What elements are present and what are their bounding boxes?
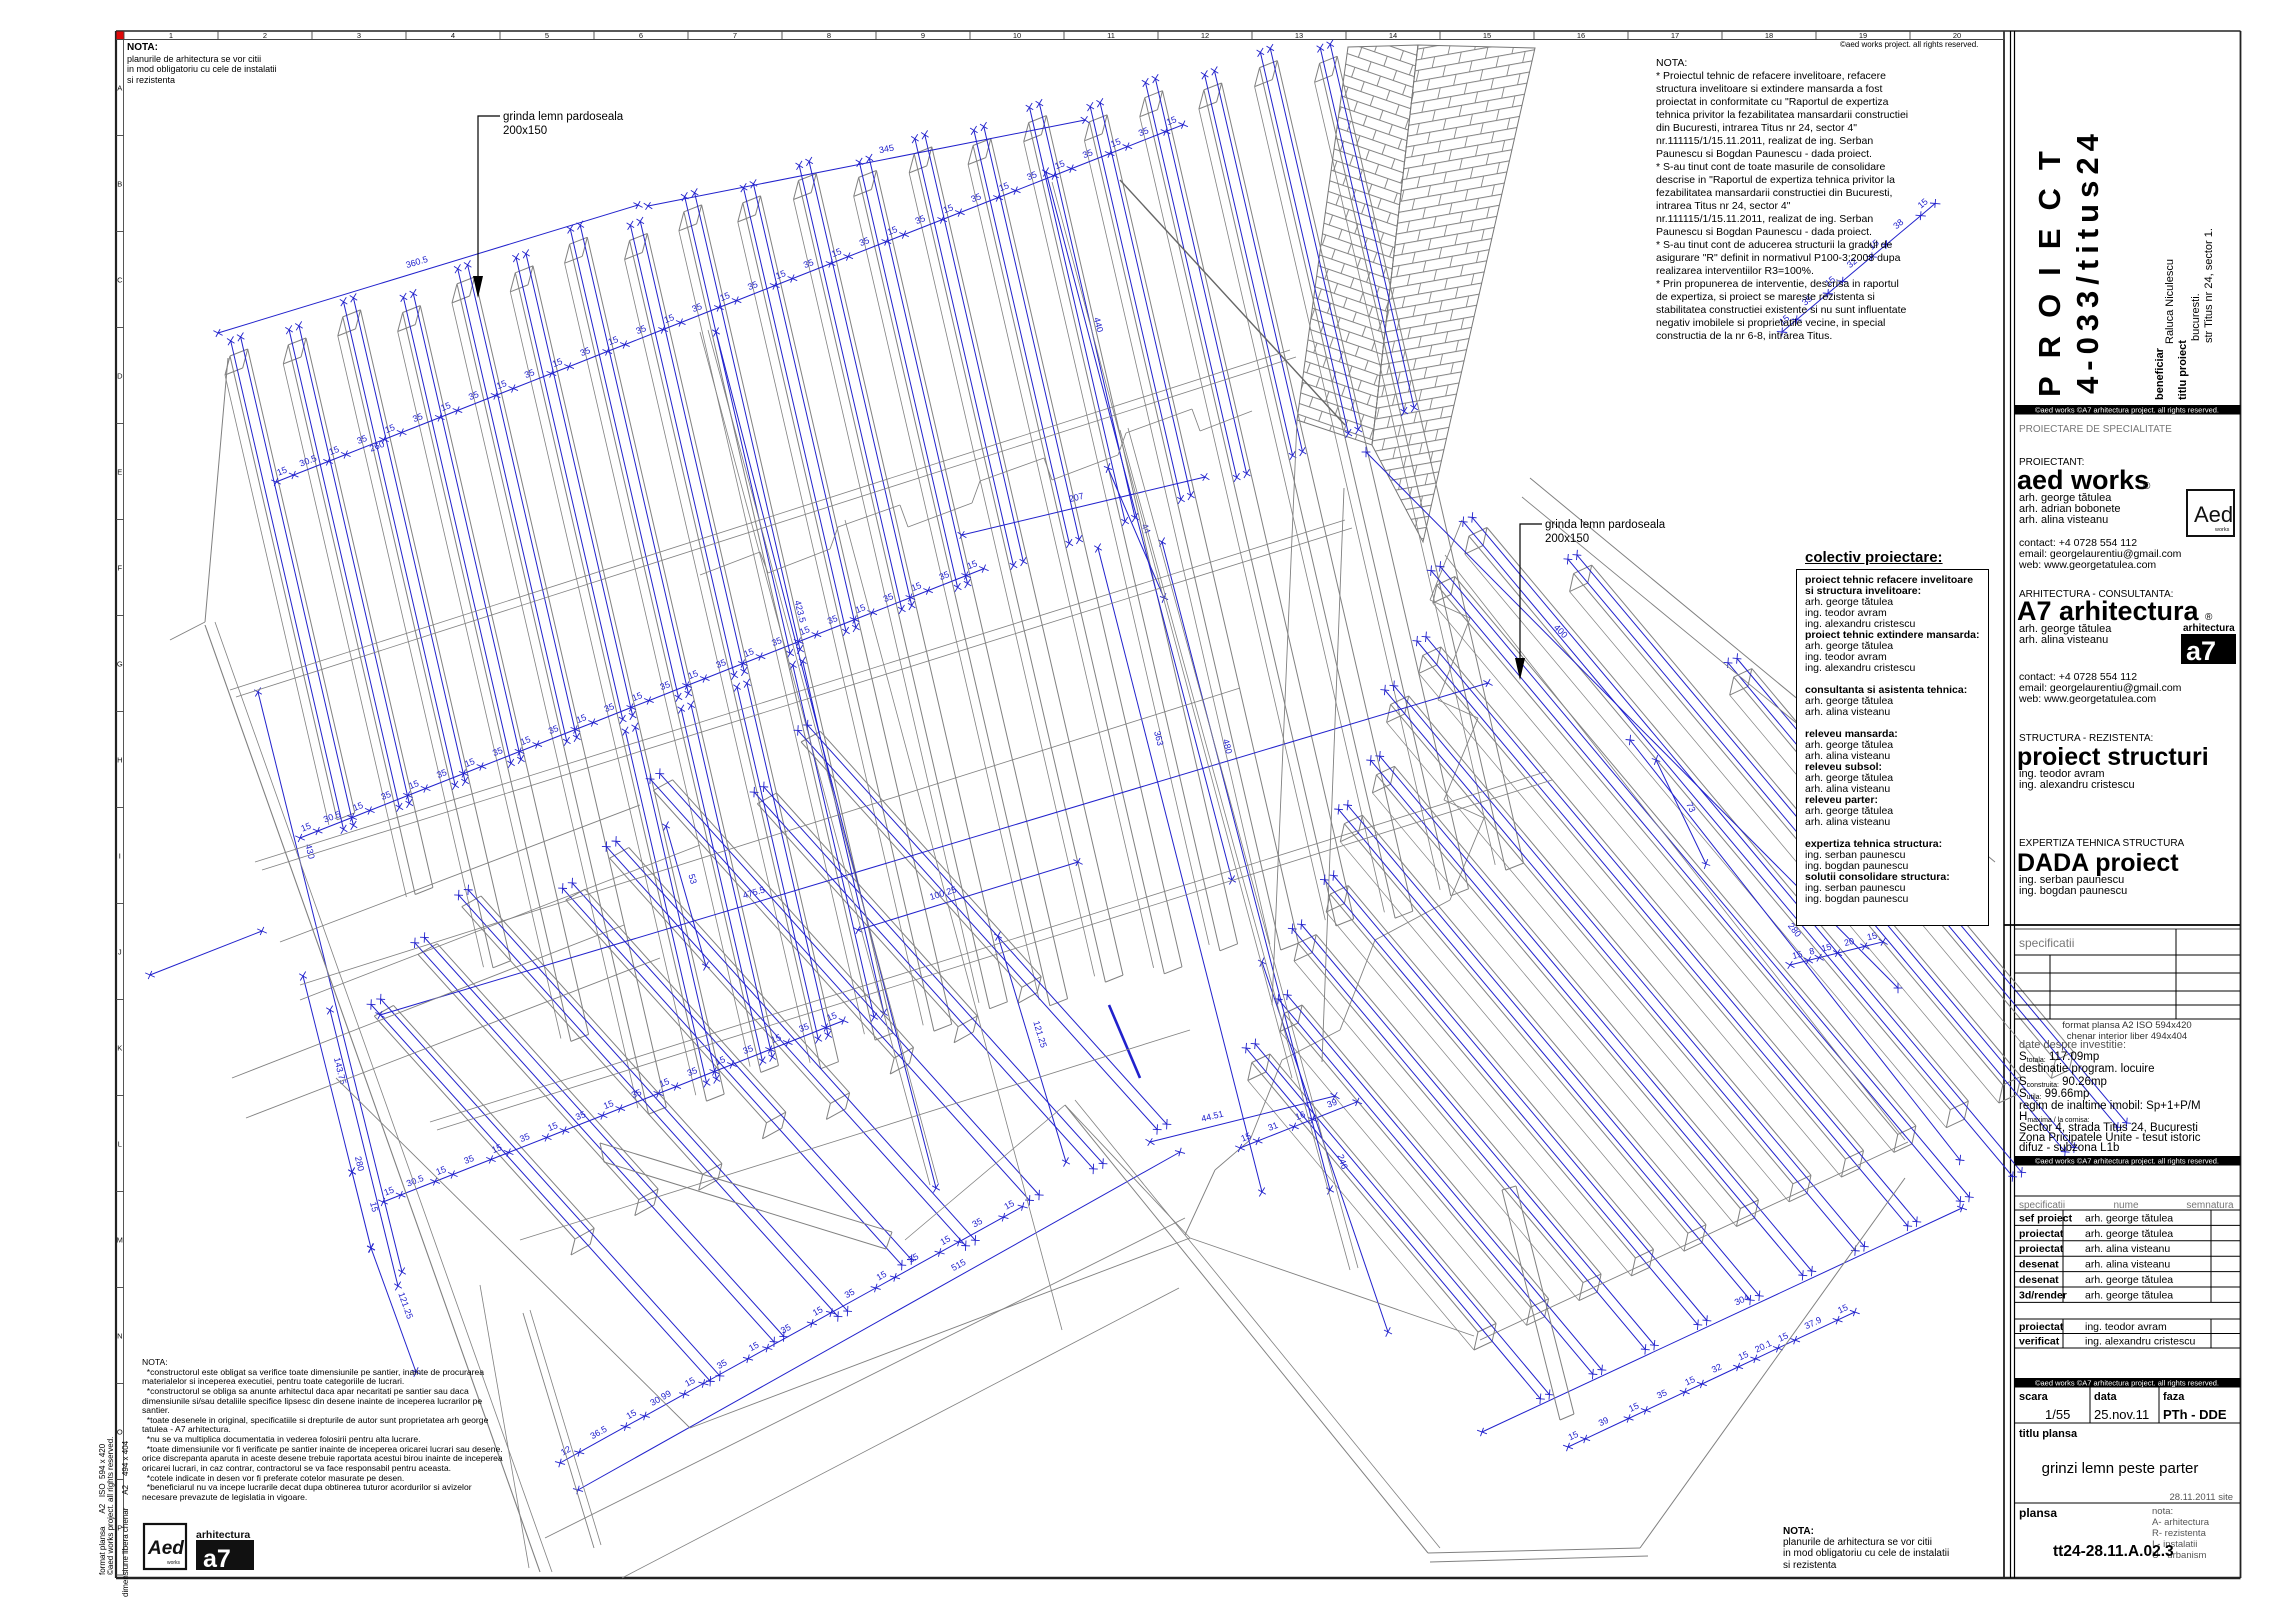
svg-text:a7: a7	[2186, 636, 2216, 666]
svg-text:data: data	[2094, 1391, 2118, 1403]
svg-text:PTh - DDE: PTh - DDE	[2163, 1407, 2227, 1422]
svg-text:Aed: Aed	[2194, 502, 2233, 527]
svg-text:©aed works ©A7 arhitectura pro: ©aed works ©A7 arhitectura project. all …	[2035, 406, 2219, 415]
svg-text:arh. alina visteanu: arh. alina visteanu	[2019, 634, 2108, 646]
svg-text:®: ®	[2205, 612, 2213, 623]
svg-text:©aed works ©A7 arhitectura pro: ©aed works ©A7 arhitectura project. all …	[2035, 1379, 2219, 1388]
svg-text:sef proiect: sef proiect	[2019, 1212, 2073, 1224]
svg-text:28.11.2011 site: 28.11.2011 site	[2169, 1492, 2233, 1503]
svg-text:aed works: aed works	[2017, 465, 2149, 495]
svg-text:arh. george tătulea: arh. george tătulea	[2085, 1274, 2173, 1286]
svg-text:beneficiar: beneficiar	[2154, 347, 2166, 400]
svg-text:titlu proiect: titlu proiect	[2177, 340, 2189, 400]
svg-text:faza: faza	[2163, 1391, 2185, 1403]
svg-text:date despre investitie:: date despre investitie:	[2019, 1039, 2126, 1051]
svg-text:scara: scara	[2019, 1391, 2049, 1403]
svg-text:arh. george tătulea: arh. george tătulea	[2085, 1228, 2173, 1240]
svg-text:proiectat: proiectat	[2019, 1228, 2064, 1240]
svg-text:ing. alexandru cristescu: ing. alexandru cristescu	[2019, 779, 2135, 791]
svg-text:specificatii: specificatii	[2019, 936, 2074, 950]
svg-text:ing. bogdan paunescu: ing. bogdan paunescu	[2019, 885, 2127, 897]
svg-text:plansa: plansa	[2019, 1506, 2057, 1520]
svg-text:4-033/titus24: 4-033/titus24	[2070, 128, 2105, 394]
svg-text:nume: nume	[2113, 1200, 2138, 1211]
svg-text:semnatura: semnatura	[2186, 1200, 2234, 1211]
svg-text:R- rezistenta: R- rezistenta	[2152, 1528, 2207, 1539]
svg-text:desenat: desenat	[2019, 1259, 2059, 1271]
svg-text:proiect structuri: proiect structuri	[2017, 743, 2209, 771]
svg-text:difuz - subzona L1b: difuz - subzona L1b	[2019, 1142, 2119, 1154]
svg-text:web: www.georgetatulea.com: web: www.georgetatulea.com	[2018, 693, 2156, 705]
svg-text:ing. teodor avram: ing. teodor avram	[2085, 1321, 2167, 1333]
svg-text:web: www.georgetatulea.com: web: www.georgetatulea.com	[2018, 559, 2156, 571]
svg-text:desenat: desenat	[2019, 1274, 2059, 1286]
svg-text:verificat: verificat	[2019, 1336, 2060, 1348]
svg-text:destinatie program. locuire: destinatie program. locuire	[2019, 1063, 2155, 1075]
svg-text:Raluca Niculescu: Raluca Niculescu	[2164, 259, 2176, 344]
svg-text:arh. alina visteanu: arh. alina visteanu	[2019, 514, 2108, 526]
svg-text:A7 arhitectura: A7 arhitectura	[2017, 596, 2200, 626]
svg-text:proiectat: proiectat	[2019, 1321, 2064, 1333]
svg-text:A- arhitectura: A- arhitectura	[2152, 1517, 2210, 1528]
svg-text:PROIECTARE DE SPECIALITATE: PROIECTARE DE SPECIALITATE	[2019, 424, 2172, 435]
svg-text:titlu plansa: titlu plansa	[2019, 1428, 2078, 1440]
svg-text:1/55: 1/55	[2045, 1407, 2070, 1422]
svg-text:str Titus nr 24, sector 1.: str Titus nr 24, sector 1.	[2203, 228, 2215, 343]
svg-text:specificatii: specificatii	[2019, 1200, 2065, 1211]
svg-text:regim de inaltime imobil: Sp+1: regim de inaltime imobil: Sp+1+P/M	[2019, 1100, 2201, 1112]
svg-text:tt24-28.11.A.02.3: tt24-28.11.A.02.3	[2053, 1543, 2174, 1560]
svg-text:arh. alina visteanu: arh. alina visteanu	[2085, 1243, 2170, 1255]
svg-text:bucuresti.: bucuresti.	[2190, 293, 2202, 341]
svg-text:PROIECT: PROIECT	[2032, 133, 2067, 397]
svg-text:3d/render: 3d/render	[2019, 1289, 2067, 1301]
svg-text:works: works	[2214, 527, 2230, 533]
svg-text:DADA proiect: DADA proiect	[2017, 849, 2179, 877]
svg-text:format plansa A2 ISO 594x42: format plansa A2 ISO 594x420	[2062, 1020, 2191, 1031]
svg-text:arh. george tătulea: arh. george tătulea	[2085, 1289, 2173, 1301]
svg-text:proiectat: proiectat	[2019, 1243, 2064, 1255]
svg-text:arhitectura: arhitectura	[2183, 623, 2235, 634]
svg-text:arh. alina visteanu: arh. alina visteanu	[2085, 1259, 2170, 1271]
svg-text:nota:: nota:	[2152, 1506, 2173, 1517]
svg-text:grinzi lemn peste parter: grinzi lemn peste parter	[2042, 1460, 2199, 1477]
svg-text:arh. george tătulea: arh. george tătulea	[2085, 1212, 2173, 1224]
svg-text:EXPERTIZA TEHNICA STRUCTURA: EXPERTIZA TEHNICA STRUCTURA	[2019, 838, 2185, 849]
svg-text:25.nov.11: 25.nov.11	[2094, 1407, 2149, 1422]
svg-text:®: ®	[2143, 481, 2151, 492]
svg-text:©aed works ©A7 arhitectura pro: ©aed works ©A7 arhitectura project. all …	[2035, 1157, 2219, 1166]
svg-text:ing. alexandru cristescu: ing. alexandru cristescu	[2085, 1336, 2195, 1348]
